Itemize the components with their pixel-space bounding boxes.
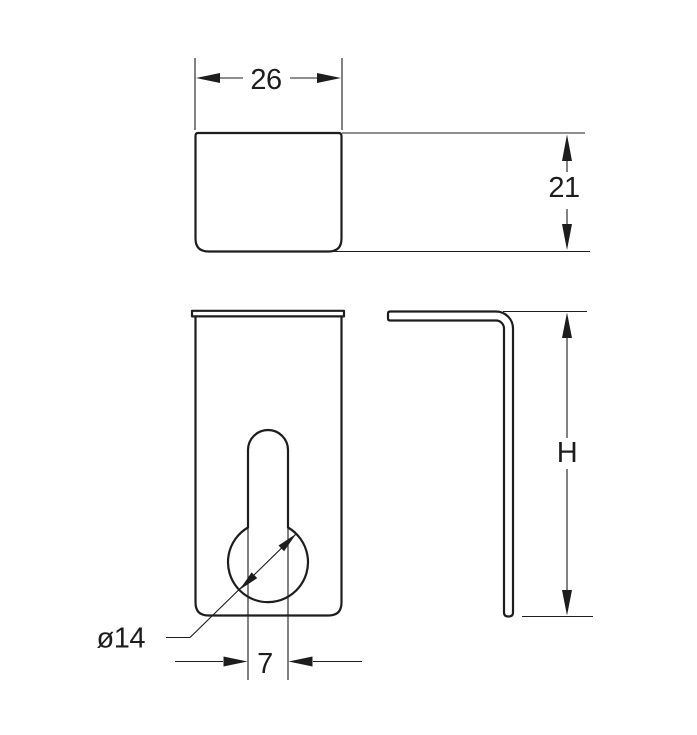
dimension-arrow-right-icon [317,73,341,83]
dimension-arrow-up-icon [562,135,572,162]
dimension-value-slot-width: 7 [257,648,273,680]
front-view-plate-outline [196,317,342,616]
dimension-value-width: 26 [250,64,281,96]
technical-drawing: 26 21 [0,0,697,735]
dimension-value-height: H [557,437,577,469]
dimension-arrow-down-icon [562,590,572,616]
dimension-arrow-down-icon [562,224,572,250]
keyhole-slot-outline [228,430,308,602]
dimension-value-depth: 21 [548,172,579,204]
top-view-outline [196,133,342,252]
dimension-depth: 21 [330,133,590,252]
side-view: H [388,312,593,617]
dimension-arrow-up-icon [562,313,572,339]
side-view-profile-outline [388,312,513,617]
drawing-canvas: 26 21 [0,0,697,735]
dimension-arrow-left-icon [196,73,220,83]
front-view-flange-edge [192,311,344,317]
dimension-slot-width: 7 [175,528,362,680]
dimension-height: H [503,312,593,617]
dimension-arrow-left-icon [289,657,313,667]
dimension-value-hole-diameter: ø14 [97,623,146,655]
top-view: 26 21 [195,58,590,252]
dimension-width: 26 [195,58,342,130]
front-view: ø14 7 [97,311,362,680]
dimension-arrow-right-icon [224,657,248,667]
dimension-hole-diameter: ø14 [97,531,300,655]
